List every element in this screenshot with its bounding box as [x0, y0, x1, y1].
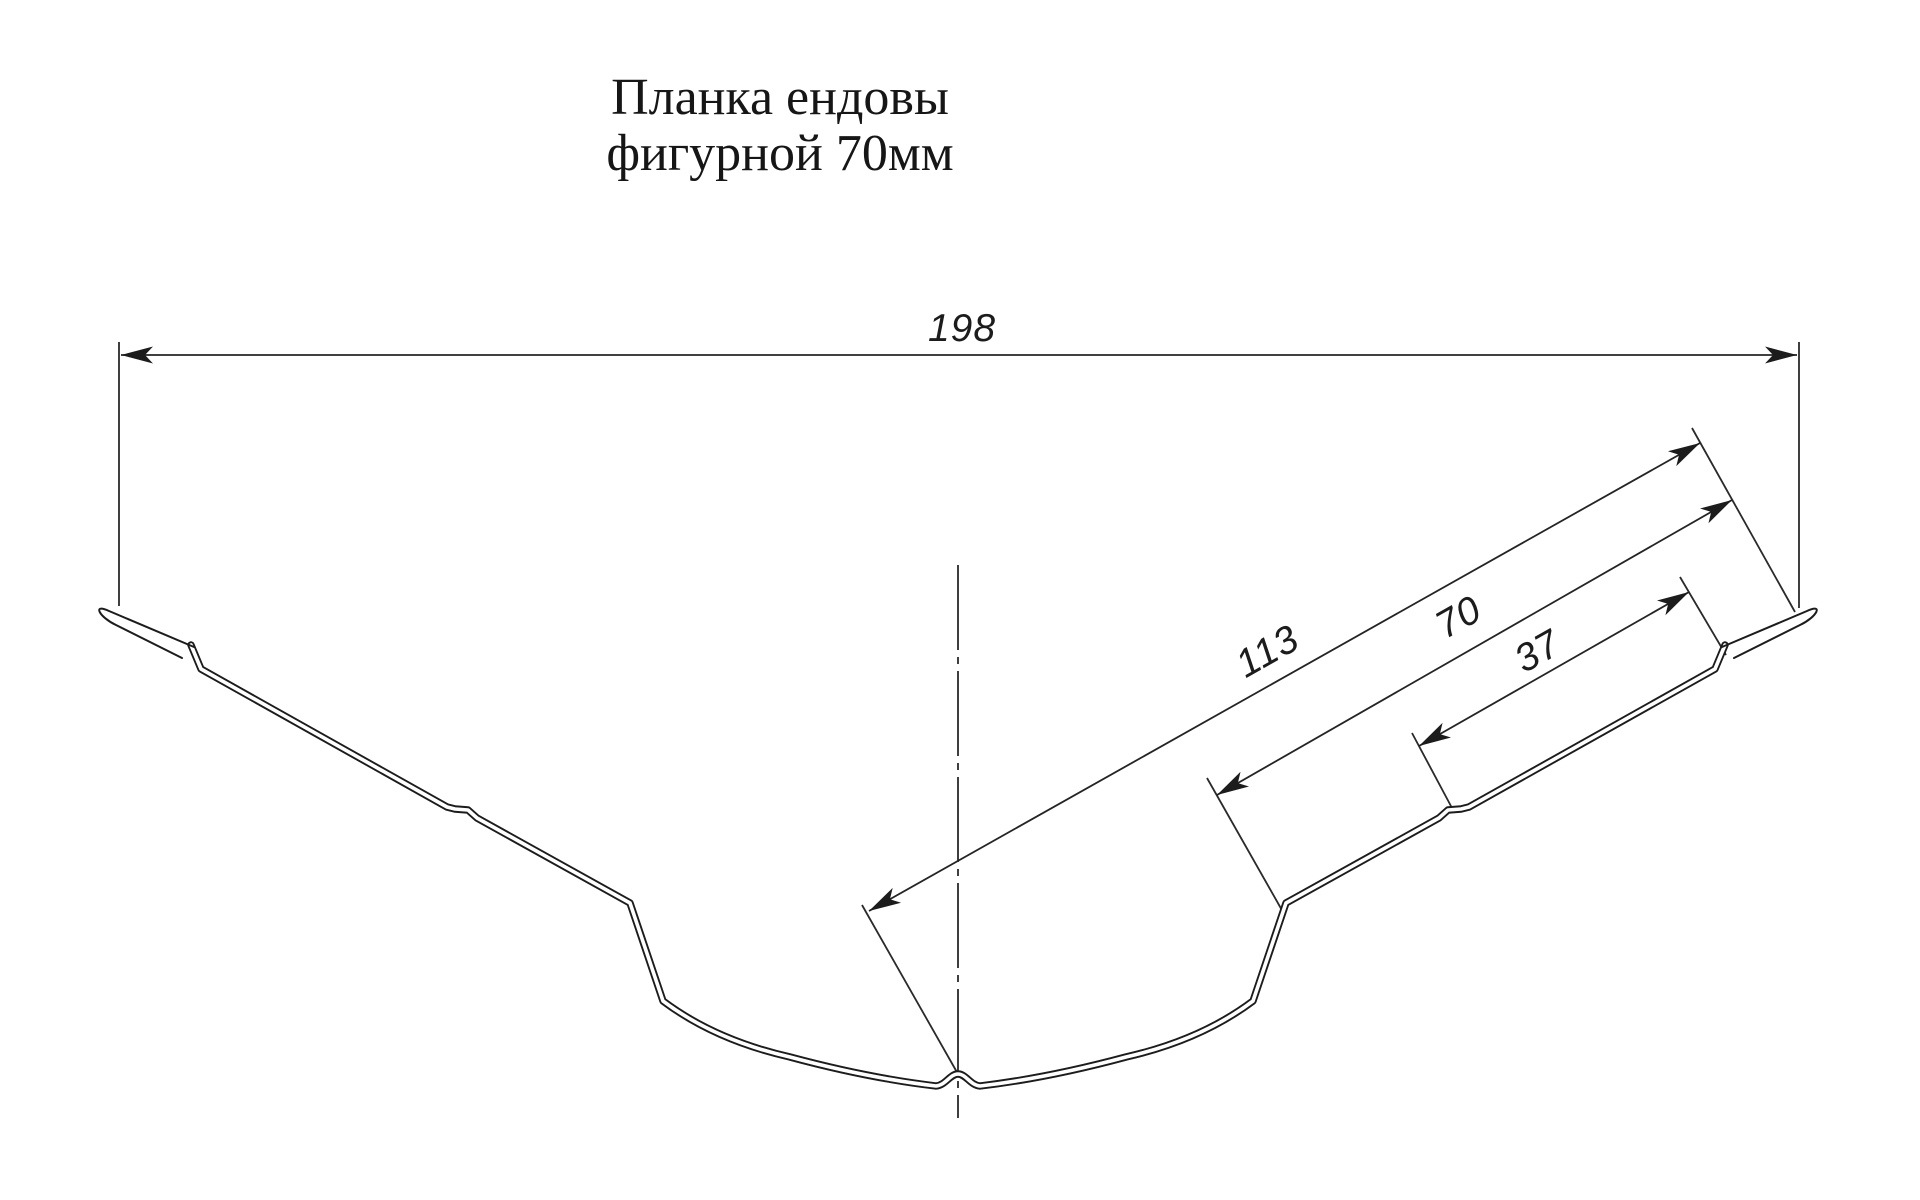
extension-line-bend — [1207, 778, 1283, 912]
dimension-label-37: 37 — [1507, 622, 1568, 682]
dimension-label-70: 70 — [1428, 588, 1489, 648]
hem-fold-right — [1722, 609, 1817, 658]
dimension-label-113: 113 — [1229, 617, 1307, 687]
dimension-slope-113: 113 — [862, 428, 1795, 1074]
valley-strip-drawing: Планка ендовы фигурной 70мм 198 113 70 — [0, 0, 1920, 1200]
extension-line-rib — [1412, 733, 1452, 808]
dimension-label-198: 198 — [928, 307, 996, 350]
extension-line-end-hook — [1692, 428, 1795, 612]
drawing-title: Планка ендовы фигурной 70мм — [606, 69, 953, 182]
dimension-line-113 — [869, 443, 1700, 911]
title-line-1: Планка ендовы — [611, 69, 949, 126]
hem-fold-left — [99, 609, 194, 658]
title-line-2: фигурной 70мм — [606, 125, 953, 182]
dimension-overall-198: 198 — [119, 307, 1799, 608]
extension-line-center — [862, 905, 958, 1074]
extension-line-hook-jog — [1680, 577, 1726, 655]
drawing-sheet: Планка ендовы фигурной 70мм 198 113 70 — [0, 0, 1920, 1200]
